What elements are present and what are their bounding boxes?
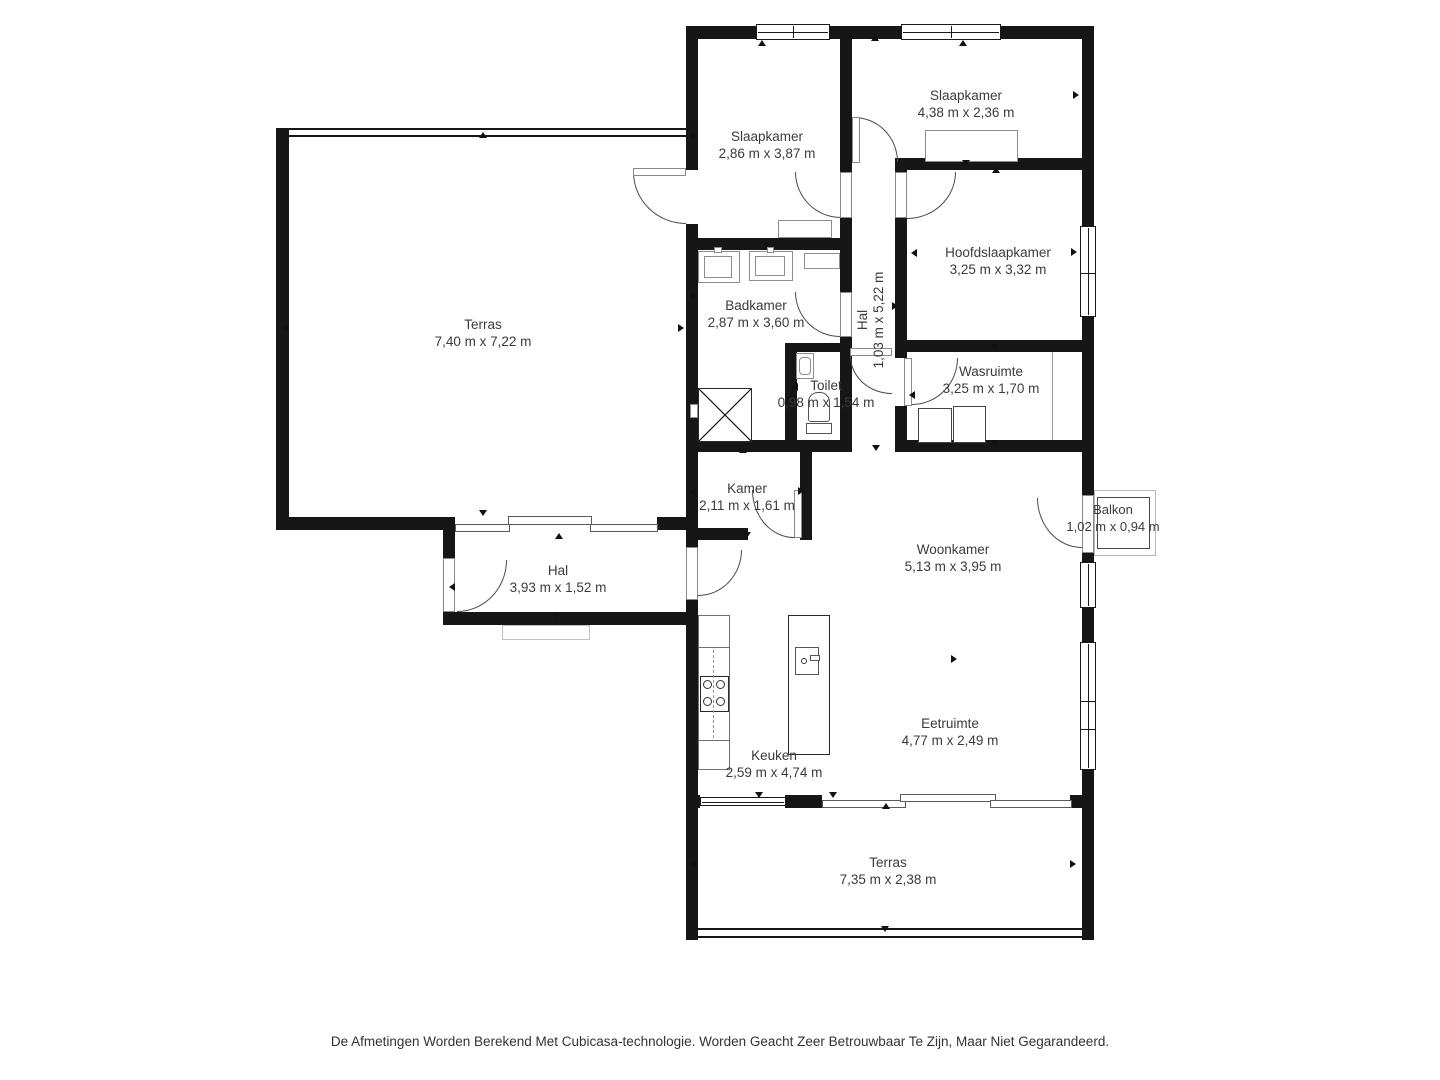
window: [901, 24, 1001, 40]
dryer: [953, 406, 986, 443]
room-name: Terras: [435, 316, 532, 333]
stove-burner: [703, 697, 712, 706]
room-dims: 3,93 m x 1,52 m: [510, 579, 607, 596]
window: [700, 797, 786, 806]
shower: [698, 388, 752, 442]
door-leaf: [840, 172, 852, 218]
wall: [686, 612, 698, 808]
door-leaf: [633, 168, 686, 176]
doormat: [502, 625, 590, 640]
room-label-terras-beneden: Terras 7,35 m x 2,38 m: [840, 854, 937, 888]
wall: [686, 224, 698, 530]
room-name: Eetruimte: [902, 715, 999, 732]
room-dims: 2,59 m x 4,74 m: [726, 764, 823, 781]
wall-marker: [743, 532, 751, 538]
door-arc: [795, 172, 841, 218]
door-leaf: [686, 547, 698, 600]
faucet: [714, 247, 722, 253]
door-arc: [457, 560, 507, 612]
wall-marker: [689, 132, 695, 140]
door-arc: [907, 172, 956, 219]
wall-marker: [951, 655, 957, 663]
room-label-slaapkamer-1: Slaapkamer 2,86 m x 3,87 m: [719, 128, 816, 162]
sliding-door-pane: [900, 794, 996, 802]
wall-marker: [762, 242, 770, 248]
wall-marker: [892, 302, 898, 310]
room-label-keuken: Keuken 2,59 m x 4,74 m: [726, 747, 823, 781]
wall-marker: [798, 487, 804, 495]
room-label-hal-corridor: Hal 1,03 m x 5,22 m: [855, 272, 887, 369]
bed: [925, 130, 1018, 162]
room-name: Toilet: [778, 377, 875, 394]
wall-marker: [881, 926, 889, 932]
wall: [840, 26, 852, 172]
wall-marker: [882, 803, 890, 809]
wardrobe: [778, 220, 832, 238]
room-label-terras-boven: Terras 7,40 m x 7,22 m: [435, 316, 532, 350]
room-name: Hal: [855, 272, 871, 369]
closet-divider: [1052, 352, 1053, 440]
room-label-hoofdslaapkamer: Hoofdslaapkamer 3,25 m x 3,32 m: [945, 244, 1051, 278]
stove-burner: [716, 697, 725, 706]
room-label-hal-entree: Hal 3,93 m x 1,52 m: [510, 562, 607, 596]
wall: [1082, 808, 1094, 940]
wall-marker: [690, 860, 696, 868]
wall: [1070, 795, 1094, 808]
wall-marker: [552, 612, 560, 618]
wall-marker: [829, 792, 837, 798]
stove-burner: [703, 680, 712, 689]
bathroom-shelf: [804, 253, 840, 269]
island-faucet: [801, 658, 807, 664]
wall-marker: [1071, 248, 1077, 256]
counter-line: [698, 647, 730, 648]
kitchen-island: [788, 615, 830, 755]
wall-marker: [689, 292, 695, 300]
wall-marker: [959, 40, 967, 46]
window: [1080, 642, 1096, 770]
shower-cross: [699, 389, 751, 441]
door-arc: [698, 550, 742, 596]
wall-marker: [755, 792, 763, 798]
island-tap: [810, 655, 820, 661]
wall-marker: [872, 445, 880, 451]
room-name: Wasruimte: [943, 363, 1040, 380]
room-dims: 5,13 m x 3,95 m: [905, 558, 1002, 575]
wall-marker: [992, 167, 1000, 173]
wall: [785, 795, 822, 808]
toilet-sink-bowl: [799, 357, 811, 375]
room-label-kamer: Kamer 2,11 m x 1,61 m: [699, 480, 795, 514]
wall: [840, 218, 852, 292]
room-name: Slaapkamer: [918, 87, 1015, 104]
door-arc: [854, 117, 898, 162]
room-label-wasruimte: Wasruimte 3,25 m x 1,70 m: [943, 363, 1040, 397]
window: [756, 24, 830, 40]
wall-marker: [282, 324, 288, 332]
room-dims: 3,25 m x 1,70 m: [943, 380, 1040, 397]
room-name: Slaapkamer: [719, 128, 816, 145]
wall-marker: [555, 533, 563, 539]
wall: [686, 600, 698, 612]
terrace-railing: [289, 128, 686, 137]
room-name: Keuken: [726, 747, 823, 764]
sliding-door-pane: [508, 516, 592, 525]
door-leaf: [794, 490, 802, 538]
room-name: Hoofdslaapkamer: [945, 244, 1051, 261]
room-dims: 7,35 m x 2,38 m: [840, 871, 937, 888]
room-dims: 2,11 m x 1,61 m: [699, 497, 795, 514]
wall-marker: [739, 447, 747, 453]
room-dims: 1,03 m x 5,22 m: [871, 272, 887, 369]
room-label-balkon: Balkon 1,02 m x 0,94 m: [1066, 501, 1159, 535]
sliding-door-pane: [822, 800, 906, 808]
wall: [276, 517, 455, 530]
wall: [443, 612, 698, 625]
window: [1080, 562, 1096, 608]
room-label-badkamer: Badkamer 2,87 m x 3,60 m: [708, 297, 805, 331]
wall: [657, 517, 698, 530]
shower-control: [690, 404, 698, 418]
wall: [1082, 608, 1094, 642]
wall: [1082, 26, 1094, 226]
room-name: Badkamer: [708, 297, 805, 314]
wall-marker: [479, 132, 487, 138]
room-label-eetruimte: Eetruimte 4,77 m x 2,49 m: [902, 715, 999, 749]
room-name: Woonkamer: [905, 541, 1002, 558]
bathroom-sink-bowl: [704, 256, 732, 278]
wall: [443, 530, 455, 558]
wall: [1082, 553, 1094, 562]
wall-marker: [690, 488, 696, 496]
sliding-door-pane: [455, 524, 510, 532]
wall-marker: [911, 249, 917, 257]
door-leaf: [895, 172, 907, 218]
terrace-railing: [698, 928, 1082, 938]
room-dims: 3,25 m x 3,32 m: [945, 261, 1051, 278]
wall-marker: [449, 583, 455, 591]
room-dims: 4,38 m x 2,36 m: [918, 104, 1015, 121]
door-arc: [633, 172, 686, 224]
wall-marker: [678, 324, 684, 332]
room-name: Hal: [510, 562, 607, 579]
wall-marker: [871, 35, 879, 41]
room-dims: 2,87 m x 3,60 m: [708, 314, 805, 331]
sliding-door-pane: [990, 800, 1072, 808]
wall: [686, 26, 1094, 39]
room-name: Terras: [840, 854, 937, 871]
door-leaf: [840, 292, 852, 337]
room-label-woonkamer: Woonkamer 5,13 m x 3,95 m: [905, 541, 1002, 575]
island-sink: [795, 647, 819, 675]
wall-marker: [991, 440, 999, 446]
room-name: Balkon: [1066, 501, 1159, 518]
room-dims: 4,77 m x 2,49 m: [902, 732, 999, 749]
room-name: Kamer: [699, 480, 795, 497]
wall-marker: [909, 391, 915, 399]
stove-burner: [716, 680, 725, 689]
disclaimer-text: De Afmetingen Worden Berekend Met Cubica…: [0, 1034, 1440, 1049]
floorplan-canvas: Slaapkamer 2,86 m x 3,87 m Slaapkamer 4,…: [0, 0, 1440, 1080]
wall-marker: [758, 40, 766, 46]
washing-machine: [918, 408, 952, 443]
wall-marker: [991, 344, 999, 350]
wall: [686, 26, 698, 170]
room-label-toilet: Toilet 0,98 m x 1,54 m: [778, 377, 875, 411]
wall-marker: [479, 510, 487, 516]
wall: [686, 795, 700, 808]
room-dims: 0,98 m x 1,54 m: [778, 394, 875, 411]
room-label-slaapkamer-2: Slaapkamer 4,38 m x 2,36 m: [918, 87, 1015, 121]
counter-dash: [713, 650, 714, 738]
window: [1080, 226, 1096, 317]
room-dims: 1,02 m x 0,94 m: [1066, 518, 1159, 535]
counter-line: [698, 740, 730, 741]
bathroom-sink-bowl: [755, 256, 785, 276]
room-dims: 2,86 m x 3,87 m: [719, 145, 816, 162]
toilet-tank: [806, 423, 832, 434]
wall: [686, 808, 698, 940]
wall-marker: [1070, 860, 1076, 868]
wall-marker: [1073, 91, 1079, 99]
room-dims: 7,40 m x 7,22 m: [435, 333, 532, 350]
wall-marker: [962, 160, 970, 166]
wall: [895, 218, 907, 358]
door-leaf: [852, 117, 860, 163]
sliding-door-pane: [590, 524, 658, 532]
